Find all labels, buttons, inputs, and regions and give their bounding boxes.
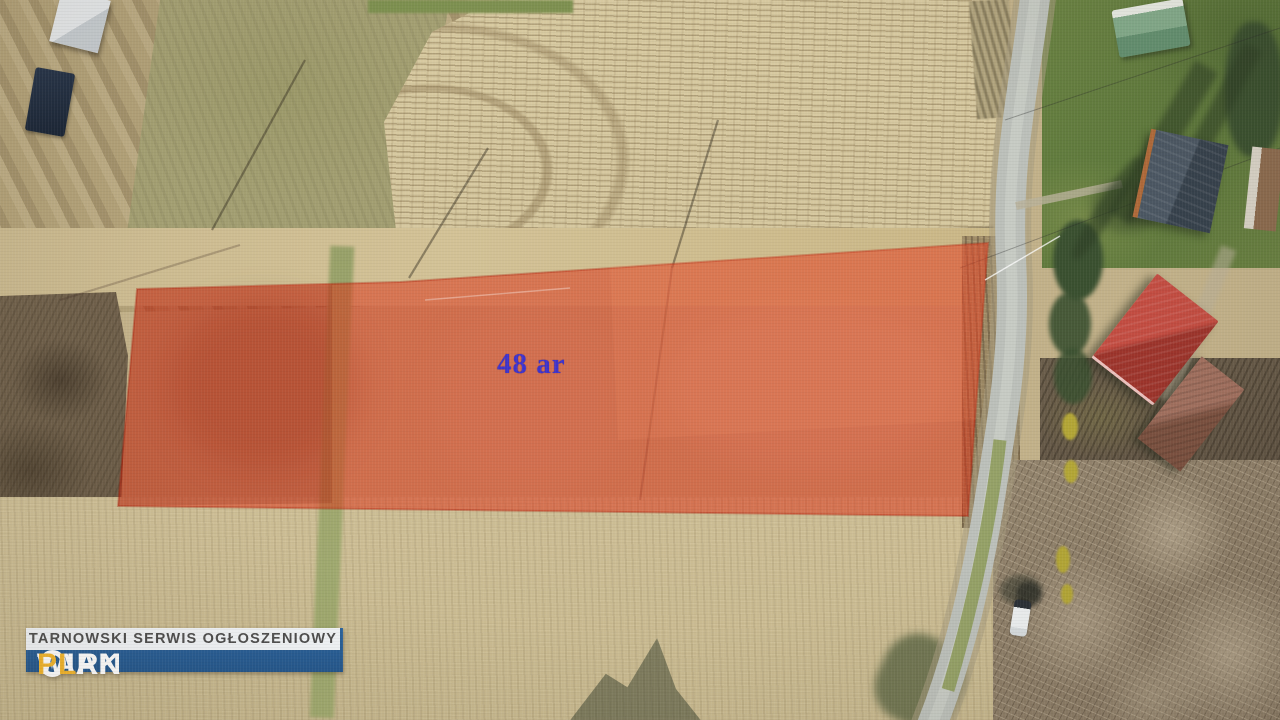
- plot-highlight-light-zone: [610, 243, 988, 440]
- plot-area-label: 48 ar: [497, 348, 566, 381]
- aerial-photo-scene: 48 ar TARN✶WIAK.PL TARNOWSKI SERWIS OGŁO…: [0, 0, 1280, 720]
- wire-reflection: [985, 236, 1060, 280]
- logo-tagline: TARNOWSKI SERWIS OGŁOSZENIOWY: [29, 631, 337, 647]
- plot-highlight-dark-zone: [118, 285, 332, 506]
- logo-tld: PL: [37, 650, 77, 680]
- logo-tagline-bar: TARNOWSKI SERWIS OGŁOSZENIOWY: [26, 628, 340, 650]
- plot-highlight-layer: [0, 0, 1280, 720]
